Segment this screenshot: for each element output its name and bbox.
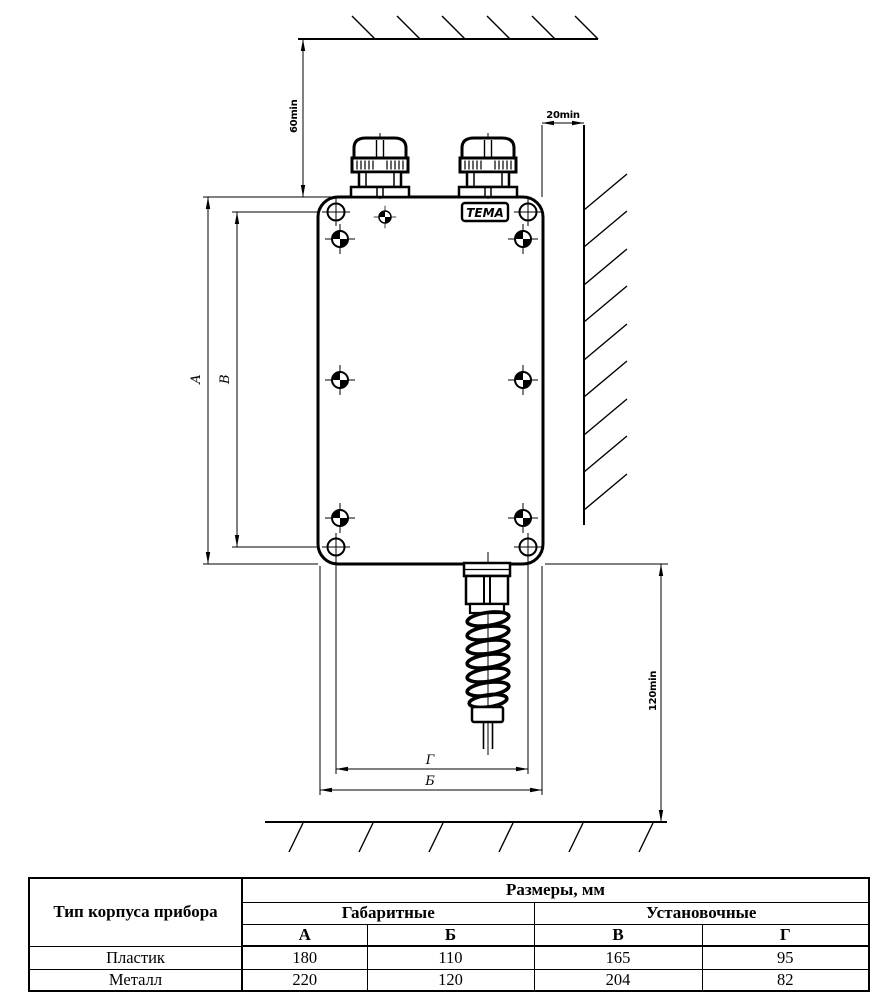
table-header-dim-V: В [534, 924, 702, 946]
cable-gland-right [459, 133, 517, 199]
metal-B: 120 [367, 969, 534, 991]
installation-drawing-page: 60min А В ТЕМА [0, 0, 881, 1000]
cable-gland-left [351, 133, 409, 199]
dim-120min-label: 120min [648, 671, 659, 711]
floor-hatching [265, 822, 667, 852]
plastic-A: 180 [242, 946, 367, 969]
wall-hatching [584, 125, 627, 525]
dimension-height-mounting: В [218, 212, 330, 547]
dim-B-label: В [218, 374, 233, 385]
metal-A: 220 [242, 969, 367, 991]
table-header-installation: Установочные [534, 902, 869, 924]
table-header-sizes: Размеры, мм [242, 878, 869, 902]
plastic-G: 95 [702, 946, 869, 969]
dimension-floor-clearance: 120min [545, 564, 668, 822]
row-metal-label: Металл [29, 969, 242, 991]
table-header-case-type: Тип корпуса прибора [29, 878, 242, 946]
row-plastic-label: Пластик [29, 946, 242, 969]
brand-plate: ТЕМА [462, 203, 508, 221]
metal-G: 82 [702, 969, 869, 991]
dimension-ceiling-clearance: 60min [289, 39, 305, 197]
table-header-dim-A: А [242, 924, 367, 946]
dim-G-label: Г [425, 753, 435, 768]
dim-B-width-label: Б [424, 774, 435, 789]
brand-label: ТЕМА [466, 206, 504, 220]
ceiling-hatching [298, 16, 598, 39]
table-row: Металл 220 120 204 82 [29, 969, 869, 991]
dimensions-table: Тип корпуса прибора Размеры, мм Габаритн… [28, 877, 870, 992]
dimension-height-outer: А [189, 197, 333, 564]
plastic-V: 165 [534, 946, 702, 969]
table-row: Пластик 180 110 165 95 [29, 946, 869, 969]
dimension-wall-clearance: 20min [542, 110, 584, 197]
metal-V: 204 [534, 969, 702, 991]
table-header-dim-G: Г [702, 924, 869, 946]
bottom-gland-spring-cable [464, 552, 510, 755]
table-header-dim-B: Б [367, 924, 534, 946]
table-header-overall: Габаритные [242, 902, 534, 924]
dimensional-drawing: 60min А В ТЕМА [0, 0, 881, 868]
plastic-B: 110 [367, 946, 534, 969]
dim-A-label: А [189, 374, 204, 385]
dim-20min-label: 20min [546, 110, 580, 121]
dim-60min-label: 60min [289, 99, 300, 133]
